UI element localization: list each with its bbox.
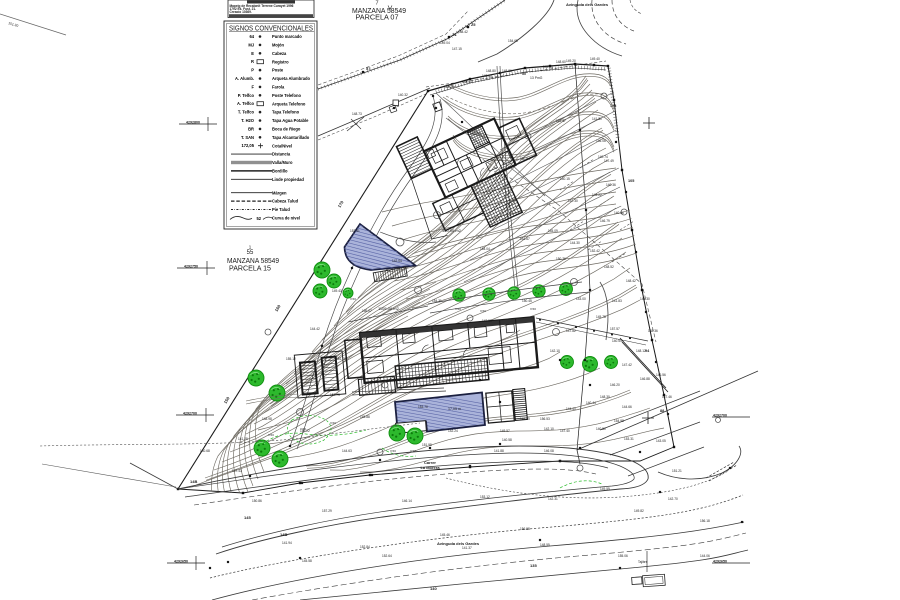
svg-text:141.29: 141.29 xyxy=(238,437,248,441)
svg-text:Creacio 10369.: Creacio 10369. xyxy=(230,10,252,14)
svg-text:R: R xyxy=(251,59,254,64)
svg-text:143.00: 143.00 xyxy=(576,297,586,301)
svg-text:PARCELA 07: PARCELA 07 xyxy=(356,15,399,22)
svg-text:V.50: V.50 xyxy=(530,307,536,311)
svg-text:147.49: 147.49 xyxy=(604,159,614,163)
svg-text:144.30: 144.30 xyxy=(570,241,580,245)
svg-text:145.09: 145.09 xyxy=(548,229,558,233)
svg-text:148.60: 148.60 xyxy=(482,74,492,78)
svg-text:153.12: 153.12 xyxy=(480,495,490,499)
svg-text:147.82: 147.82 xyxy=(566,329,576,333)
svg-text:4292700: 4292700 xyxy=(183,411,197,415)
svg-text:SIGNOS CONVENCIONALES: SIGNOS CONVENCIONALES xyxy=(229,24,313,33)
svg-text:140.54: 140.54 xyxy=(612,339,622,343)
svg-text:4292800: 4292800 xyxy=(186,120,200,124)
svg-text:148.80: 148.80 xyxy=(486,69,496,73)
svg-text:4292700: 4292700 xyxy=(713,413,727,417)
svg-text:151.21: 151.21 xyxy=(672,469,682,473)
svg-text:300,00 m2: 300,00 m2 xyxy=(442,228,462,233)
svg-text:Poste: Poste xyxy=(272,68,284,73)
svg-text:152.84: 152.84 xyxy=(360,545,370,549)
svg-text:141.94: 141.94 xyxy=(282,541,292,545)
svg-text:144.06: 144.06 xyxy=(700,554,710,558)
svg-text:50: 50 xyxy=(522,72,526,76)
svg-text:157.37: 157.37 xyxy=(556,119,566,123)
svg-text:148.98: 148.98 xyxy=(262,417,272,421)
svg-text:148.80: 148.80 xyxy=(502,69,512,73)
svg-text:149.04: 149.04 xyxy=(440,41,450,45)
svg-text:Punto marcado: Punto marcado xyxy=(272,34,302,39)
svg-text:Poste Telefono: Poste Telefono xyxy=(272,93,302,98)
svg-text:25: 25 xyxy=(471,22,476,27)
svg-text:Arqueta Alumbrado: Arqueta Alumbrado xyxy=(272,76,311,81)
svg-text:V.50: V.50 xyxy=(480,309,486,313)
svg-text:A. Alumb.: A. Alumb. xyxy=(235,76,254,81)
svg-text:155.12: 155.12 xyxy=(286,357,296,361)
svg-text:156.58: 156.58 xyxy=(520,527,530,531)
svg-text:157.30: 157.30 xyxy=(568,199,578,203)
svg-text:146.56: 146.56 xyxy=(656,373,666,377)
svg-text:135: 135 xyxy=(530,563,537,568)
svg-text:149.43: 149.43 xyxy=(332,289,342,293)
svg-text:P: P xyxy=(251,68,254,73)
svg-text:146.08: 146.08 xyxy=(544,449,554,453)
svg-text:V.50: V.50 xyxy=(350,297,356,301)
svg-text:24: 24 xyxy=(452,32,457,37)
svg-text:PARCELA 15: PARCELA 15 xyxy=(229,266,271,273)
svg-text:145.88: 145.88 xyxy=(360,415,370,419)
svg-text:154.04: 154.04 xyxy=(480,247,490,251)
svg-text:Pie Talud: Pie Talud xyxy=(272,207,290,212)
svg-text:13 PmG: 13 PmG xyxy=(530,76,543,80)
svg-text:Mojón: Mojón xyxy=(272,43,285,48)
svg-text:Curva de nivel: Curva de nivel xyxy=(272,216,300,221)
svg-text:BR: BR xyxy=(248,126,254,131)
svg-text:Avinguda dels Gardes: Avinguda dels Gardes xyxy=(437,541,480,546)
svg-text:T. H2O: T. H2O xyxy=(241,118,255,123)
svg-text:MJ: MJ xyxy=(248,42,254,47)
svg-text:146.20: 146.20 xyxy=(610,383,620,387)
svg-text:150.54: 150.54 xyxy=(520,157,530,161)
svg-text:57: 57 xyxy=(366,66,371,71)
svg-text:55: 55 xyxy=(247,250,254,256)
svg-text:V.50: V.50 xyxy=(268,433,274,437)
svg-text:Distancia: Distancia xyxy=(272,152,291,157)
svg-text:142.70: 142.70 xyxy=(668,497,678,501)
svg-text:156.53: 156.53 xyxy=(540,417,550,421)
svg-text:149.57: 149.57 xyxy=(500,429,510,433)
svg-text:172,05: 172,05 xyxy=(241,143,254,148)
svg-text:148.20: 148.20 xyxy=(444,85,454,89)
svg-text:155.22: 155.22 xyxy=(300,429,310,433)
svg-text:Valla/Muro: Valla/Muro xyxy=(272,160,293,165)
svg-text:140.44: 140.44 xyxy=(586,401,596,405)
svg-text:148.12: 148.12 xyxy=(636,349,646,353)
svg-text:7: 7 xyxy=(375,1,378,7)
svg-text:146.14: 146.14 xyxy=(402,499,412,503)
svg-text:Registro: Registro xyxy=(272,59,289,64)
svg-text:142.24: 142.24 xyxy=(448,429,458,433)
svg-text:151.95: 151.95 xyxy=(422,443,432,447)
svg-text:V.50: V.50 xyxy=(330,421,336,425)
svg-text:148.55: 148.55 xyxy=(540,543,550,547)
svg-text:170: 170 xyxy=(337,199,345,208)
svg-text:156.07: 156.07 xyxy=(362,309,372,313)
svg-text:E: E xyxy=(251,51,254,56)
svg-text:105: 105 xyxy=(628,179,634,183)
svg-text:150: 150 xyxy=(223,395,231,404)
svg-text:64: 64 xyxy=(249,34,254,39)
svg-text:140.32: 140.32 xyxy=(398,93,408,97)
svg-text:T. Telfco: T. Telfco xyxy=(238,110,255,115)
svg-text:Márgen: Márgen xyxy=(272,190,287,195)
svg-text:155.06: 155.06 xyxy=(618,554,628,558)
svg-text:52: 52 xyxy=(257,216,262,221)
svg-text:Linde propiedad: Linde propiedad xyxy=(272,177,304,182)
svg-text:147.43: 147.43 xyxy=(232,469,242,473)
svg-text:17,05 m: 17,05 m xyxy=(448,407,461,411)
svg-text:154.31: 154.31 xyxy=(432,299,442,303)
svg-text:150.76: 150.76 xyxy=(556,257,566,261)
svg-text:140.74: 140.74 xyxy=(598,155,608,159)
svg-text:145.46: 145.46 xyxy=(440,533,450,537)
svg-text:Cabeza: Cabeza xyxy=(272,51,287,56)
svg-text:Arqueta Telefono: Arqueta Telefono xyxy=(272,101,306,106)
svg-text:14B: 14B xyxy=(190,479,197,484)
svg-text:94: 94 xyxy=(645,349,650,353)
svg-text:149.00: 149.00 xyxy=(543,65,553,69)
svg-text:160: 160 xyxy=(274,303,282,312)
svg-text:148.60: 148.60 xyxy=(556,60,566,64)
svg-text:1105,00 m2: 1105,00 m2 xyxy=(378,306,400,311)
svg-text:141.83: 141.83 xyxy=(612,299,622,303)
svg-text:153.31: 153.31 xyxy=(624,437,634,441)
svg-text:156.18: 156.18 xyxy=(700,519,710,523)
svg-text:145: 145 xyxy=(244,515,251,520)
svg-text:144.60: 144.60 xyxy=(520,417,530,421)
svg-text:141.37: 141.37 xyxy=(462,546,472,550)
svg-text:MANZANA 58549: MANZANA 58549 xyxy=(227,258,279,265)
svg-text:Tajibre: Tajibre xyxy=(638,560,648,564)
svg-text:146.79: 146.79 xyxy=(600,219,610,223)
svg-text:A. Telfco: A. Telfco xyxy=(237,101,254,106)
svg-text:140.68: 140.68 xyxy=(200,449,210,453)
svg-text:140: 140 xyxy=(430,586,437,591)
svg-text:148.30: 148.30 xyxy=(600,395,610,399)
svg-text:Cota/Nivel: Cota/Nivel xyxy=(272,143,292,148)
svg-text:148.42: 148.42 xyxy=(626,279,636,283)
svg-text:140.86: 140.86 xyxy=(614,211,624,215)
svg-text:Tapa Telefono: Tapa Telefono xyxy=(272,110,300,115)
svg-text:149.20: 149.20 xyxy=(566,59,576,63)
svg-text:Cabeza Talud: Cabeza Talud xyxy=(272,199,299,204)
svg-text:140.50: 140.50 xyxy=(596,427,606,431)
svg-text:145.22: 145.22 xyxy=(592,193,602,197)
svg-text:144.40: 144.40 xyxy=(566,407,576,411)
svg-text:147.15: 147.15 xyxy=(452,47,462,51)
svg-text:148.73: 148.73 xyxy=(352,112,362,116)
svg-text:Avinguda dels Gardes: Avinguda dels Gardes xyxy=(566,2,609,7)
svg-text:141.30: 141.30 xyxy=(592,117,602,121)
svg-text:146.88: 146.88 xyxy=(640,377,650,381)
svg-text:142.10: 142.10 xyxy=(550,349,560,353)
svg-text:145.78: 145.78 xyxy=(596,315,606,319)
svg-text:142.31: 142.31 xyxy=(548,497,558,501)
svg-text:150.45: 150.45 xyxy=(522,299,532,303)
svg-text:P. Telfco: P. Telfco xyxy=(238,93,255,98)
svg-text:149.59: 149.59 xyxy=(600,487,610,491)
svg-text:147.40: 147.40 xyxy=(560,429,570,433)
svg-text:152.42: 152.42 xyxy=(590,249,600,253)
svg-text:144.30: 144.30 xyxy=(640,297,650,301)
svg-text:148.36: 148.36 xyxy=(648,329,658,333)
svg-text:148.42: 148.42 xyxy=(458,30,468,34)
svg-text:Tapa Agua Potable: Tapa Agua Potable xyxy=(272,118,309,123)
svg-text:153.70: 153.70 xyxy=(418,405,428,409)
svg-text:141.88: 141.88 xyxy=(494,449,504,453)
svg-text:143.07: 143.07 xyxy=(470,132,480,136)
svg-text:140.15: 140.15 xyxy=(560,177,570,181)
svg-text:154.98: 154.98 xyxy=(614,419,624,423)
svg-text:146.06: 146.06 xyxy=(596,139,606,143)
svg-text:4292750: 4292750 xyxy=(184,264,198,268)
svg-text:147.42: 147.42 xyxy=(622,363,632,367)
svg-text:142.10: 142.10 xyxy=(544,427,554,431)
svg-text:151.76: 151.76 xyxy=(336,357,346,361)
svg-text:150.86: 150.86 xyxy=(252,499,262,503)
svg-text:143.05: 143.05 xyxy=(656,439,666,443)
svg-text:157.57: 157.57 xyxy=(610,327,620,331)
svg-text:149.82: 149.82 xyxy=(634,509,644,513)
svg-text:T. SAN: T. SAN xyxy=(241,135,254,140)
svg-text:144.63: 144.63 xyxy=(342,449,352,453)
svg-text:152.73: 152.73 xyxy=(330,393,340,397)
svg-text:La Morera: La Morera xyxy=(420,465,440,470)
svg-text:Tapa Alcantarillado: Tapa Alcantarillado xyxy=(272,135,310,140)
svg-text:157.29: 157.29 xyxy=(322,509,332,513)
svg-text:144.42: 144.42 xyxy=(310,327,320,331)
svg-text:145.58: 145.58 xyxy=(302,559,312,563)
svg-text:148.40: 148.40 xyxy=(462,80,472,84)
svg-text:143.67: 143.67 xyxy=(520,237,530,241)
svg-text:4292650: 4292650 xyxy=(174,559,188,563)
svg-text:1: 1 xyxy=(249,245,252,250)
svg-text:152.64: 152.64 xyxy=(382,554,392,558)
svg-text:Farola: Farola xyxy=(272,85,285,90)
svg-text:4292650: 4292650 xyxy=(713,559,727,563)
svg-text:140.36: 140.36 xyxy=(606,183,616,187)
svg-text:140.58: 140.58 xyxy=(502,438,512,442)
svg-text:Bordillo: Bordillo xyxy=(272,169,288,174)
svg-text:14B: 14B xyxy=(280,532,287,537)
svg-text:144.66: 144.66 xyxy=(622,405,632,409)
svg-text:151.30: 151.30 xyxy=(8,21,19,28)
svg-text:148.52: 148.52 xyxy=(604,265,614,269)
svg-text:V.50: V.50 xyxy=(390,449,396,453)
svg-text:153.51: 153.51 xyxy=(350,229,360,233)
svg-text:143.59: 143.59 xyxy=(482,319,492,323)
svg-text:142.04: 142.04 xyxy=(392,259,402,263)
svg-text:147.46: 147.46 xyxy=(662,395,672,399)
svg-text:154.65: 154.65 xyxy=(508,39,518,43)
svg-text:Boca de Riego: Boca de Riego xyxy=(272,127,301,132)
svg-text:149.40: 149.40 xyxy=(590,57,600,61)
